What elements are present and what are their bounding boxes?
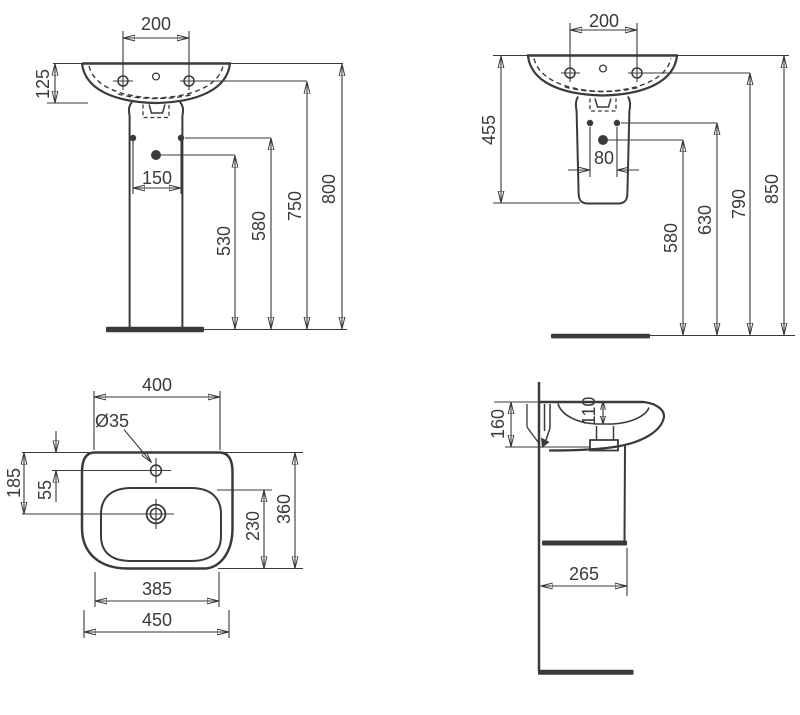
wall-bracket [541,438,550,449]
front-pedestal-view [47,31,347,332]
side-view [494,382,664,675]
dim-label-underside-height-semi: 790 [730,189,748,219]
drain-outlet [151,150,161,160]
floor-line [551,334,650,339]
dim-label-drain-height-pedestal: 530 [215,226,233,256]
fixing-hole-right [178,135,184,141]
dim-label-tap-hole-diameter: Ø35 [95,412,129,430]
front-semi-pedestal-view [493,23,795,338]
fixing-hole-left [130,135,136,141]
dim-label-basin-semi-height: 455 [480,115,498,145]
dim-label-fixing-height-semi: 630 [696,205,714,235]
overflow-hole-front [153,73,160,80]
drawing-linework [0,0,800,715]
dim-label-depth-from-wall: 265 [569,565,599,583]
dim-label-rear-to-drain: 185 [5,468,23,498]
dim-label-front-width: 385 [142,580,172,598]
fixing-hole-right [614,120,620,126]
basin-profile [549,402,664,451]
dim-label-tap-hole-spacing-pedestal: 200 [141,15,171,33]
fixing-hole-left [587,120,593,126]
dim-label-bowl-depth: 230 [244,511,262,541]
dim-label-overall-width: 450 [142,611,172,629]
dim-label-overall-depth: 360 [275,494,293,524]
dim-label-fixing-hole-spacing-semi: 80 [594,149,614,167]
dim-label-underside-height-pedestal: 750 [286,191,304,221]
dim-label-overall-height-pedestal: 800 [320,174,338,204]
overflow-hole-front [600,65,607,72]
dim-label-overall-height-semi: 850 [763,174,781,204]
dim-label-rear-to-tap-hole: 55 [36,480,54,500]
drain-outlet [598,135,608,145]
floor-line [538,670,634,675]
semi-pedestal-bottom [542,541,627,546]
semi-pedestal-edge [625,446,626,541]
dim-label-rear-width: 400 [142,376,172,394]
dim-label-tap-hole-spacing-semi: 200 [589,12,619,30]
diameter-leader [124,430,152,463]
pedestal-base [106,327,204,332]
dim-label-rim-depth: 125 [34,69,52,99]
dim-label-bowl-inner-depth: 110 [580,397,598,426]
technical-drawing-canvas: 200 125 150 530 580 750 800 200 455 80 5… [0,0,800,715]
dim-label-basin-height-side: 160 [489,409,507,439]
dim-label-fixing-height-pedestal: 580 [250,211,268,241]
bowl-outline [101,488,221,561]
dim-label-drain-height-semi: 580 [662,223,680,253]
dim-label-fixing-hole-spacing-pedestal: 150 [142,169,172,187]
